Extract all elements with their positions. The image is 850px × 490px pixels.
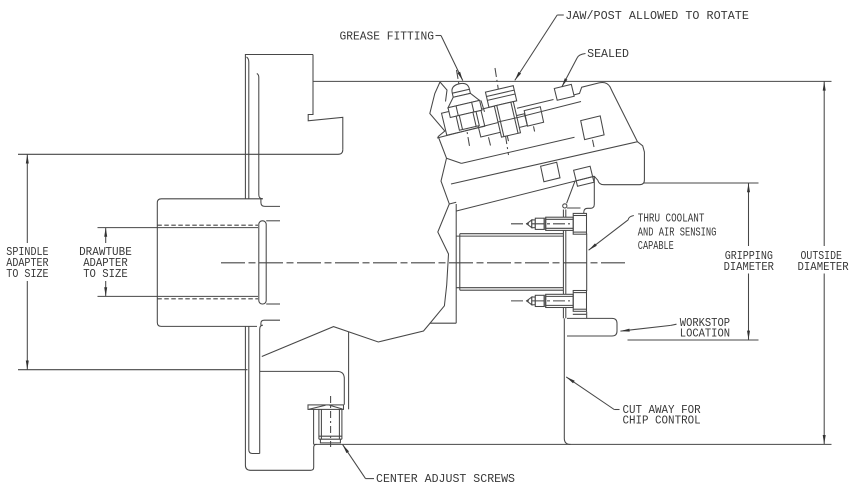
svg-text:CAPABLE: CAPABLE (638, 239, 674, 253)
svg-text:CENTER ADJUST SCREWS: CENTER ADJUST SCREWS (376, 472, 515, 486)
svg-text:DIAMETER: DIAMETER (798, 260, 849, 274)
svg-text:JAW/POST ALLOWED TO ROTATE: JAW/POST ALLOWED TO ROTATE (565, 9, 749, 23)
svg-text:TO SIZE: TO SIZE (6, 267, 48, 281)
svg-text:THRU COOLANT: THRU COOLANT (638, 212, 705, 226)
svg-text:AND AIR SENSING: AND AIR SENSING (638, 225, 717, 239)
svg-text:GREASE FITTING: GREASE FITTING (340, 29, 435, 43)
svg-text:DIAMETER: DIAMETER (724, 260, 774, 274)
svg-text:CHIP CONTROL: CHIP CONTROL (623, 413, 701, 427)
svg-text:TO SIZE: TO SIZE (83, 267, 128, 281)
svg-text:LOCATION: LOCATION (680, 326, 730, 340)
svg-text:SEALED: SEALED (587, 47, 629, 61)
